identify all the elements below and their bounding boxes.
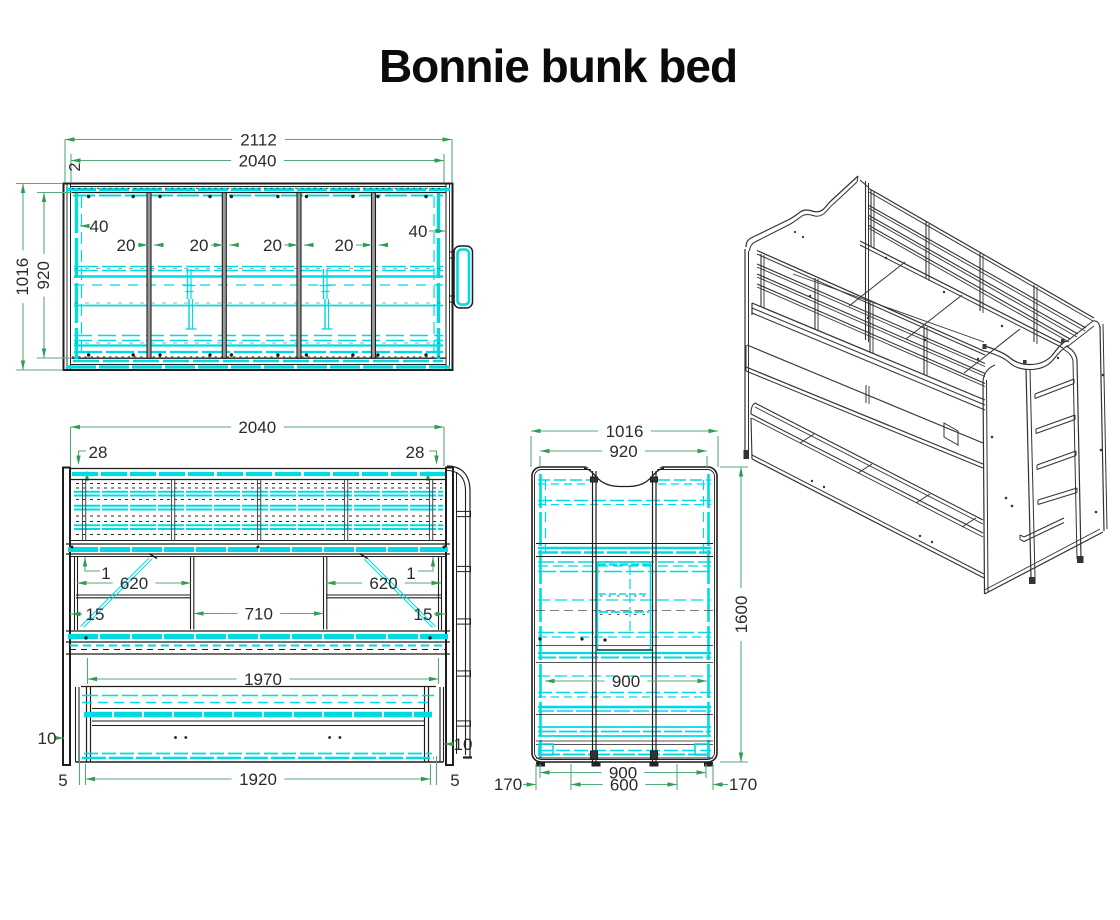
svg-text:Bonnie bunk bed: Bonnie bunk bed (379, 40, 737, 92)
svg-text:2040: 2040 (239, 152, 277, 171)
svg-text:920: 920 (34, 261, 53, 289)
svg-text:170: 170 (729, 775, 757, 794)
svg-text:5: 5 (58, 771, 67, 790)
svg-text:1920: 1920 (239, 770, 277, 789)
svg-text:15: 15 (86, 605, 105, 624)
svg-text:40: 40 (409, 222, 428, 241)
svg-text:710: 710 (245, 605, 273, 624)
svg-text:2: 2 (67, 162, 84, 171)
svg-text:20: 20 (263, 236, 282, 255)
svg-text:40: 40 (90, 217, 109, 236)
svg-text:1016: 1016 (13, 258, 32, 296)
svg-text:1: 1 (406, 564, 415, 583)
svg-text:5: 5 (450, 771, 459, 790)
svg-text:920: 920 (609, 442, 637, 461)
svg-text:1016: 1016 (606, 422, 644, 441)
svg-text:1: 1 (101, 564, 110, 583)
svg-text:20: 20 (117, 236, 136, 255)
svg-text:2040: 2040 (238, 418, 276, 437)
svg-text:20: 20 (335, 236, 354, 255)
svg-text:28: 28 (406, 443, 425, 462)
svg-text:170: 170 (494, 775, 522, 794)
svg-text:28: 28 (89, 443, 108, 462)
svg-text:620: 620 (120, 574, 148, 593)
svg-text:1600: 1600 (732, 596, 751, 634)
svg-text:15: 15 (414, 605, 433, 624)
svg-text:620: 620 (369, 574, 397, 593)
svg-text:10: 10 (38, 729, 57, 748)
svg-text:2112: 2112 (240, 131, 277, 150)
svg-text:900: 900 (612, 672, 640, 691)
svg-text:600: 600 (610, 776, 638, 795)
svg-text:20: 20 (190, 236, 209, 255)
